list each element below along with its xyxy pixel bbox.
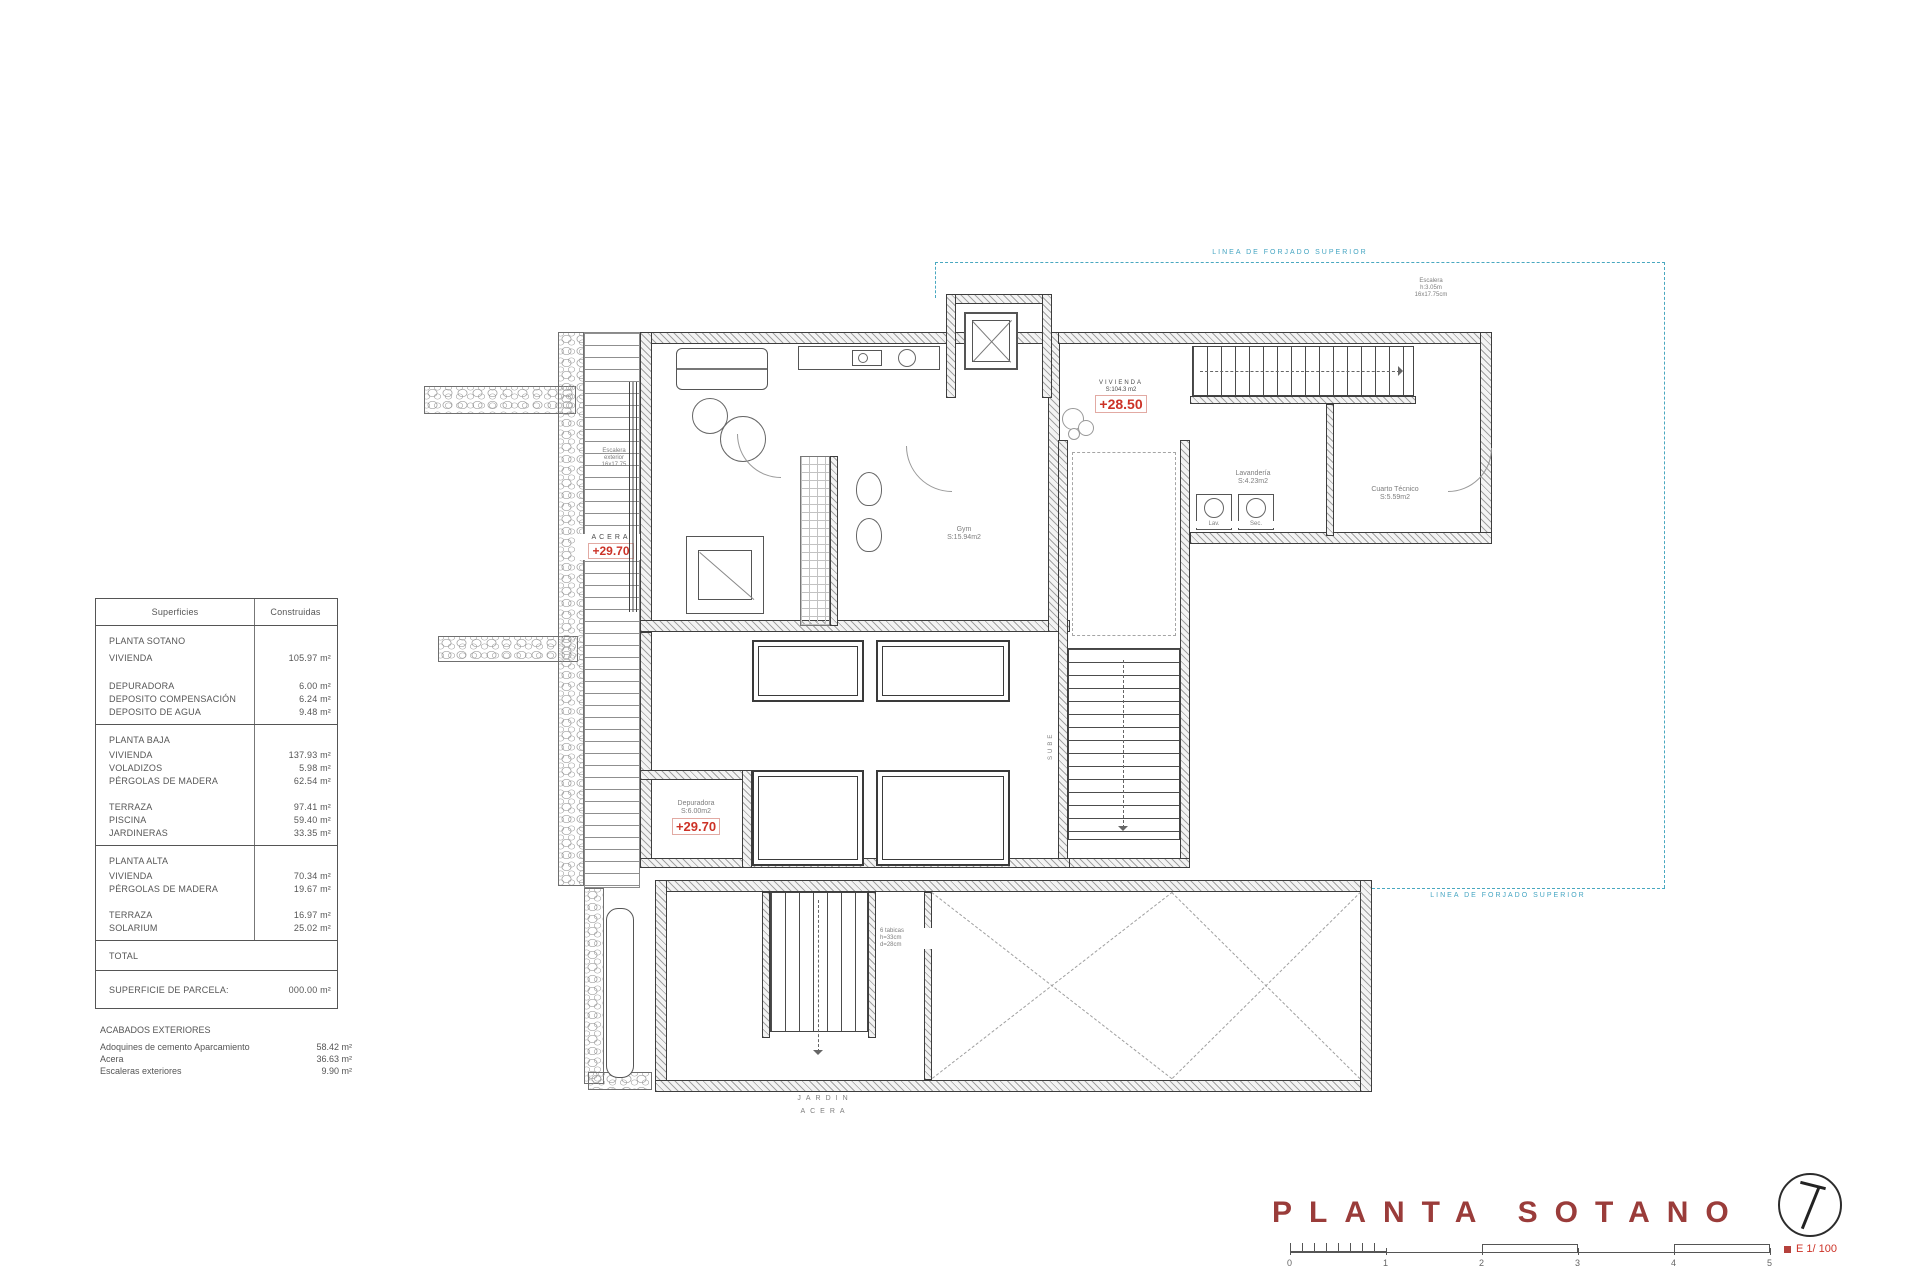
lav-label: Lav. — [1196, 521, 1232, 528]
table-row: PÉRGOLAS DE MADERA19.67 m² — [96, 882, 337, 895]
wall-segment — [640, 332, 652, 632]
forjado-outline-left — [935, 262, 936, 298]
row-value: 16.97 m² — [254, 910, 337, 920]
row-value: 19.67 m² — [254, 884, 337, 894]
floor-plan-canvas: Superficies Construidas PLANTA SOTANO VI… — [0, 0, 1920, 1280]
row-value: 70.34 m² — [254, 871, 337, 881]
table-column-divider — [254, 599, 255, 625]
room-area: S:5.59m2 — [1352, 494, 1438, 502]
table-row: SOLARIUM25.02 m² — [96, 921, 337, 934]
wall-segment — [762, 892, 770, 1038]
stone-wall — [438, 636, 578, 662]
lightwell-box — [876, 640, 1010, 702]
table-gap — [96, 787, 337, 800]
scale-tick — [1770, 1248, 1771, 1255]
table-row: DEPOSITO COMPENSACIÓN6.24 m² — [96, 692, 337, 705]
table-row: PLANTA ALTA — [96, 852, 337, 869]
acabados-title: ACABADOS EXTERIORES — [100, 1025, 352, 1041]
scale-number: 0 — [1287, 1258, 1292, 1268]
scale-tick — [1482, 1248, 1483, 1255]
tank-deposito — [876, 770, 1010, 866]
row-label: PLANTA ALTA — [96, 856, 254, 866]
forjado-label-bottom: LINEA DE FORJADO SUPERIOR — [1408, 892, 1608, 900]
table-header-superficies: Superficies — [96, 607, 254, 617]
wall-segment — [830, 456, 838, 626]
row-label: PLANTA SOTANO — [96, 636, 254, 646]
surfaces-table-header: Superficies Construidas — [96, 599, 337, 626]
table-row: VIVIENDA105.97 m² — [96, 649, 337, 666]
scale-tick — [1290, 1248, 1291, 1255]
table-column-divider — [254, 846, 255, 940]
table-column-divider — [254, 725, 255, 845]
wall-segment — [1058, 440, 1068, 868]
table-row: VIVIENDA70.34 m² — [96, 869, 337, 882]
wall-segment — [655, 880, 1372, 892]
toilet-icon — [856, 472, 882, 506]
room-name: Gym — [932, 526, 996, 534]
plant-sketch — [1068, 428, 1080, 440]
row-label: VIVIENDA — [96, 750, 254, 760]
row-label: PÉRGOLAS DE MADERA — [96, 776, 254, 786]
jardin-label: JARDIN — [770, 1095, 880, 1103]
acera-bottom-label: ACERA — [762, 1108, 888, 1116]
note-line: h=33cm — [880, 935, 936, 942]
scale-baseline — [1290, 1252, 1770, 1253]
wall-segment — [946, 294, 956, 398]
row-value: 5.98 m² — [254, 763, 337, 773]
table-row: VOLADIZOS5.98 m² — [96, 761, 337, 774]
scale-tick — [1674, 1248, 1675, 1255]
stone-wall — [558, 332, 584, 886]
lavanderia-label: Lavandería S:4.23m2 — [1215, 470, 1291, 486]
table-column-divider — [254, 626, 255, 724]
dryer-drum-icon — [1246, 498, 1266, 518]
note-line: 6 tabicas — [880, 928, 936, 935]
row-value: 58.42 m² — [316, 1042, 352, 1052]
vivienda-level: +28.50 — [1095, 395, 1146, 413]
bathroom-tiles — [800, 456, 830, 626]
scale-segment — [1674, 1244, 1770, 1252]
row-value: 33.35 m² — [254, 828, 337, 838]
stair-void — [1072, 452, 1176, 636]
ramp-treads — [770, 892, 868, 1032]
row-value: 6.24 m² — [254, 694, 337, 704]
gym-label: Gym S:15.94m2 — [932, 526, 996, 542]
wall-segment — [946, 294, 1052, 304]
table-row: PÉRGOLAS DE MADERA62.54 m² — [96, 774, 337, 787]
note-line: d=28cm — [880, 942, 936, 949]
wall-segment — [640, 632, 652, 868]
wall-segment — [655, 1080, 1372, 1092]
table-row: TOTAL — [96, 947, 337, 964]
table-row: TERRAZA16.97 m² — [96, 908, 337, 921]
scale-tick — [1386, 1248, 1387, 1255]
room-area: S:4.23m2 — [1215, 478, 1291, 486]
table-row: PLANTA SOTANO — [96, 632, 337, 649]
acabados-exteriores: ACABADOS EXTERIORES Adoquines de cemento… — [100, 1025, 352, 1077]
table-row: PLANTA BAJA — [96, 731, 337, 748]
depuradora-label: Depuradora S:6.00m2 +29.70 — [652, 800, 740, 836]
wall-segment — [1190, 396, 1416, 404]
wall-segment — [1058, 332, 1492, 344]
wall-segment — [1042, 294, 1052, 398]
row-value: 105.97 m² — [254, 653, 337, 663]
stairs-arrow — [1118, 826, 1128, 836]
row-label: PLANTA BAJA — [96, 735, 254, 745]
row-value: 97.41 m² — [254, 802, 337, 812]
forjado-label-top: LINEA DE FORJADO SUPERIOR — [1185, 249, 1395, 257]
wall-segment — [742, 770, 752, 868]
depuradora-level: +29.70 — [672, 818, 720, 835]
row-label: Escaleras exteriores — [100, 1066, 321, 1076]
row-value: 36.63 m² — [316, 1054, 352, 1064]
row-value: 9.48 m² — [254, 707, 337, 717]
room-name: Cuarto Técnico — [1352, 486, 1438, 494]
note-line: Escalera — [1398, 278, 1464, 285]
cooktop-icon — [898, 349, 916, 367]
wall-segment — [1360, 880, 1372, 1092]
wall-segment — [868, 892, 876, 1038]
row-label: TOTAL — [96, 951, 254, 961]
scale-number: 4 — [1671, 1258, 1676, 1268]
row-label: PÉRGOLAS DE MADERA — [96, 884, 254, 894]
stairs-lower — [1068, 648, 1180, 840]
cuarto-tecnico-label: Cuarto Técnico S:5.59m2 — [1352, 486, 1438, 502]
table-row: DEPURADORA6.00 m² — [96, 679, 337, 692]
plant-sketch — [1078, 420, 1094, 436]
row-value: 59.40 m² — [254, 815, 337, 825]
wall-segment — [1190, 532, 1492, 544]
stair-note: Escalera h:3.05m 16x17.75cm — [1398, 278, 1464, 299]
table-row: DEPOSITO DE AGUA9.48 m² — [96, 705, 337, 718]
wall-segment — [640, 620, 1070, 632]
table-gap — [96, 666, 337, 679]
row-label: VOLADIZOS — [96, 763, 254, 773]
row-value: 62.54 m² — [254, 776, 337, 786]
row-label: PISCINA — [96, 815, 254, 825]
scale-tick — [1578, 1248, 1579, 1255]
planter — [606, 908, 634, 1078]
row-label: DEPURADORA — [96, 681, 254, 691]
room-name: VIVIENDA — [1082, 380, 1160, 387]
note-line: 16x17.75cm — [1398, 292, 1464, 299]
table-row: TERRAZA97.41 m² — [96, 800, 337, 813]
wall-segment — [1480, 332, 1492, 542]
row-value: 6.00 m² — [254, 681, 337, 691]
room-name: Depuradora — [652, 800, 740, 808]
bidet-icon — [856, 518, 882, 552]
acabados-row: Adoquines de cemento Aparcamiento58.42 m… — [100, 1041, 352, 1053]
table-section-parcela: SUPERFICIE DE PARCELA:000.00 m² — [96, 971, 337, 1008]
wall-segment — [1326, 404, 1334, 536]
row-label: DEPOSITO DE AGUA — [96, 707, 254, 717]
table-row: VIVIENDA137.93 m² — [96, 748, 337, 761]
wall-segment — [640, 770, 752, 780]
table-row: SUPERFICIE DE PARCELA:000.00 m² — [96, 983, 337, 996]
row-label: JARDINERAS — [96, 828, 254, 838]
room-name: Lavandería — [1215, 470, 1291, 478]
ramp-arrow — [813, 1050, 823, 1060]
scale-segment — [1482, 1244, 1578, 1252]
scale-label-marker — [1784, 1246, 1791, 1253]
row-value: 9.90 m² — [321, 1066, 352, 1076]
table-section-total: TOTAL — [96, 941, 337, 971]
acabados-row: Escaleras exteriores9.90 m² — [100, 1065, 352, 1077]
acabados-row: Acera36.63 m² — [100, 1053, 352, 1065]
surfaces-table: Superficies Construidas PLANTA SOTANO VI… — [95, 598, 338, 1009]
row-label: TERRAZA — [96, 910, 254, 920]
row-value: 000.00 m² — [266, 985, 337, 995]
room-area: S:15.94m2 — [932, 534, 996, 542]
vivienda-level-label: VIVIENDA S:104.3 m2 +28.50 — [1082, 380, 1160, 414]
scale-number: 1 — [1383, 1258, 1388, 1268]
note-line: h:3.05m — [1398, 285, 1464, 292]
forjado-outline-bottom — [1372, 888, 1665, 889]
table-section-planta-sotano: PLANTA SOTANO VIVIENDA105.97 m² DEPURADO… — [96, 626, 337, 725]
sofa — [676, 348, 768, 390]
table-section-planta-alta: PLANTA ALTA VIVIENDA70.34 m² PÉRGOLAS DE… — [96, 846, 337, 941]
table-section-planta-baja: PLANTA BAJA VIVIENDA137.93 m² VOLADIZOS5… — [96, 725, 337, 846]
stairs-direction-line — [1200, 371, 1400, 372]
wall-segment — [1058, 858, 1190, 868]
table-row: JARDINERAS33.35 m² — [96, 826, 337, 839]
ramp-note: 6 tabicas h=33cm d=28cm — [880, 928, 936, 949]
scale-comb — [1290, 1243, 1386, 1252]
row-value: 25.02 m² — [254, 923, 337, 933]
row-label: SOLARIUM — [96, 923, 254, 933]
acera-level: +29.70 — [588, 543, 633, 559]
stone-wall — [424, 386, 576, 414]
lightwell-box — [752, 640, 864, 702]
row-label: Adoquines de cemento Aparcamiento — [100, 1042, 316, 1052]
table-header-construidas: Construidas — [254, 607, 337, 617]
table-gap — [96, 895, 337, 908]
sheet-title: PLANTA SOTANO — [1272, 1196, 1792, 1230]
sube-label: SUBE — [1048, 732, 1055, 760]
table-row: PISCINA59.40 m² — [96, 813, 337, 826]
scale-number: 3 — [1575, 1258, 1580, 1268]
sink-bowl-icon — [858, 353, 868, 363]
row-label: TERRAZA — [96, 802, 254, 812]
wall-segment — [924, 892, 932, 1080]
stone-wall — [584, 888, 604, 1084]
wall-segment — [655, 880, 667, 1092]
washer-drum-icon — [1204, 498, 1224, 518]
scale-label: E 1/ 100 — [1796, 1243, 1837, 1255]
sec-label: Sec. — [1238, 521, 1274, 528]
scale-number: 2 — [1479, 1258, 1484, 1268]
row-label: DEPOSITO COMPENSACIÓN — [96, 694, 254, 704]
row-label: VIVIENDA — [96, 871, 254, 881]
wall-segment — [1180, 440, 1190, 868]
stairs-direction-line — [1123, 660, 1124, 828]
window — [629, 382, 637, 612]
room-area: S:104.3 m2 — [1082, 387, 1160, 394]
stairs-arrow — [1398, 366, 1408, 376]
row-label: SUPERFICIE DE PARCELA: — [96, 985, 266, 995]
row-value: 137.93 m² — [254, 750, 337, 760]
row-label: Acera — [100, 1054, 316, 1064]
row-label: VIVIENDA — [96, 653, 254, 663]
tank-deposito — [752, 770, 864, 866]
room-area: S:6.00m2 — [652, 808, 740, 816]
ramp-direction-line — [818, 900, 819, 1052]
scale-number: 5 — [1767, 1258, 1772, 1268]
